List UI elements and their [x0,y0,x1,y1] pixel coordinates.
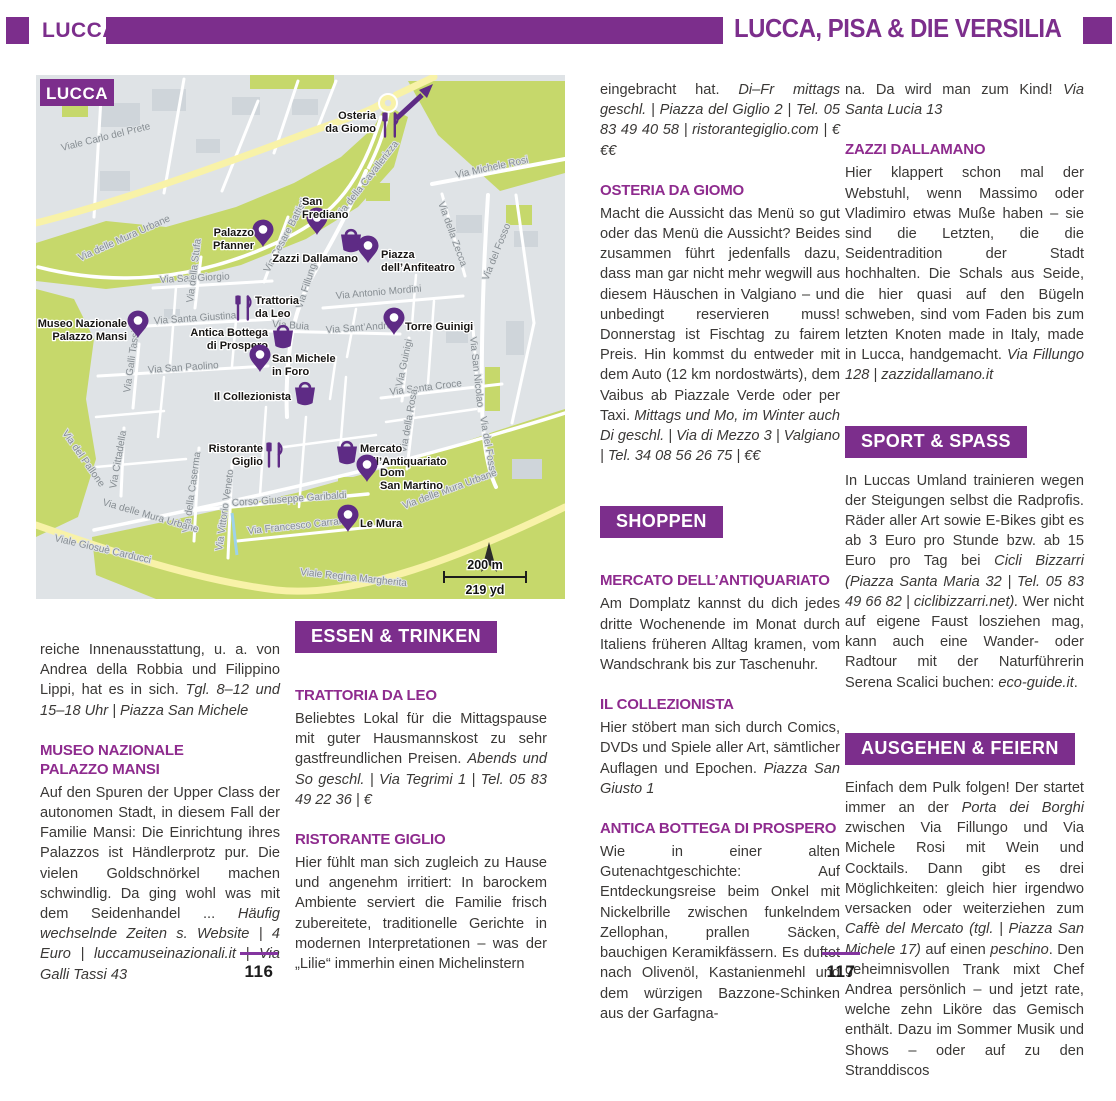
scale-meters: 200 m [467,558,502,572]
paragraph: eingebracht hat. Di–Fr mittags geschl. |… [600,80,840,161]
header-bar [106,17,723,44]
poi-label: Zazzi Dallamano [272,253,358,265]
entry-heading-trattoria-da-leo: TRATTORIA DA LEO [295,686,547,705]
article-column-4: na. Da wird man zum Kind! Via Santa Luci… [845,80,1084,1101]
body-copy: zwischen Via Fillungo und Via Michele Ro… [845,820,1084,917]
section-header-ausgehen-feiern: AUSGEHEN & FEIERN [845,733,1075,765]
address-info: eco-guide.it [998,675,1073,691]
body-copy: . [1074,675,1078,691]
entry-heading-antica-bottega-di-prospero: ANTICA BOTTEGA DI PROSPERO [600,819,840,838]
page-number-rule [240,952,278,955]
entry-heading-mercato-dell-antiquariato: MERCATO DELL’ANTIQUARIATO [600,571,840,590]
body-copy: na. Da wird man zum Kind! [845,82,1063,98]
lucca-city-map: Viale Carlo del PreteVia delle Mura Urba… [36,75,565,599]
entry-heading-osteria-da-giomo: OSTERIA DA GIOMO [600,181,840,200]
poi-label: PalazzoPfanner [213,227,255,252]
page-number-value: 117 [827,962,856,981]
poi-label: Torre Guinigi [405,321,473,333]
paragraph: Wie in einer alten Gutenachtgeschichte: … [600,842,840,1024]
entry-heading-museo-nazionale-palazzo-mansi: MUSEO NAZIONALEPALAZZO MANSI [40,741,280,779]
body-copy: Hier klappert schon mal der Webstuhl, we… [845,165,1084,363]
paragraph: Hier stöbert man sich durch Comics, DVDs… [600,718,840,799]
body-copy: Macht die Aussicht das Menü so gut oder … [600,206,840,424]
page-number-right: 117 [811,952,871,982]
page-number-rule [822,952,860,955]
entry-heading-ristorante-giglio: RISTORANTE GIGLIO [295,830,547,849]
section-header-sport-spass: SPORT & SPASS [845,426,1027,458]
page-number-value: 116 [245,962,274,981]
address-info: Mittags und Mo, im Winter auch Di geschl… [600,408,840,464]
paragraph: Beliebtes Lokal für die Mittagspause mit… [295,709,547,810]
paragraph: Am Domplatz kannst du dich jedes dritte … [600,594,840,675]
corner-square-left [6,17,29,44]
body-copy: Hier fühlt man sich zugleich zu Hause un… [295,855,547,972]
scale-yards: 219 yd [466,583,505,597]
paragraph: Hier fühlt man sich zugleich zu Hause un… [295,853,547,974]
entry-heading-il-collezionista: IL COLLEZIONISTA [600,695,840,714]
map-title-box: LUCCA [40,79,114,106]
lucca-map-svg: Viale Carlo del PreteVia delle Mura Urba… [36,75,565,599]
address-info: peschino [990,942,1048,958]
body-copy: Auf den Spuren der Upper Class der auton… [40,785,280,922]
body-copy: auf einen [921,942,990,958]
paragraph: na. Da wird man zum Kind! Via Santa Luci… [845,80,1084,120]
map-title: LUCCA [46,84,108,103]
article-column-3: eingebracht hat. Di–Fr mittags geschl. |… [600,80,840,1044]
address-info: Porta dei Borghi [962,800,1084,816]
body-copy: . Den geheimnisvollen Trank mixt Chef An… [845,942,1084,1079]
paragraph: Macht die Aussicht das Menü so gut oder … [600,204,840,467]
article-column-1: reiche Innenausstattung, u. a. von Andre… [40,640,280,1005]
poi-label: Le Mura [360,518,403,530]
paragraph: reiche Innenausstattung, u. a. von Andre… [40,640,280,721]
page-title: LUCCA, PISA & DIE VERSILIA [734,13,1061,44]
body-copy: Wie in einer alten Gutenachtgeschichte: … [600,844,840,1022]
paragraph: In Luccas Umland trainieren wegen der St… [845,471,1084,693]
section-header-essen-trinken: ESSEN & TRINKEN [295,621,497,653]
article-column-2: ESSEN & TRINKENTRATTORIA DA LEOBeliebtes… [295,621,547,994]
body-copy: Am Domplatz kannst du dich jedes dritte … [600,596,840,673]
body-copy: eingebracht hat. [600,82,738,98]
entry-heading-zazzi-dallamano: ZAZZI DALLAMANO [845,140,1084,159]
poi-label: Il Collezionista [214,391,292,403]
page-number-left: 116 [229,952,289,982]
paragraph: Hier klappert schon mal der Webstuhl, we… [845,163,1084,385]
paragraph: Einfach dem Pulk folgen! Der startet imm… [845,778,1084,1081]
corner-square-right [1083,17,1112,44]
section-header-shoppen: SHOPPEN [600,506,723,538]
